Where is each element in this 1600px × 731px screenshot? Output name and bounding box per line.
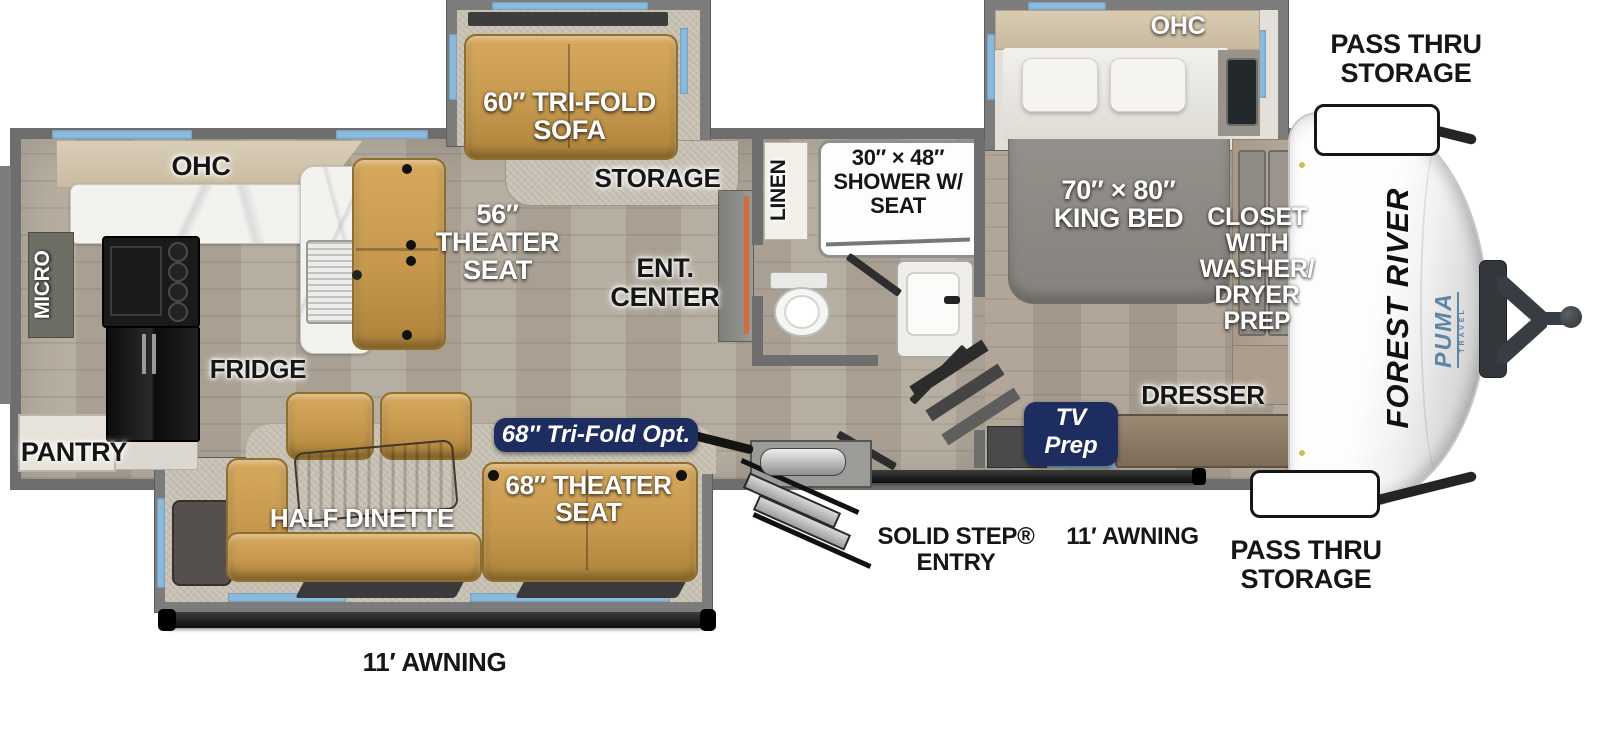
storage-label: STORAGE	[585, 164, 730, 192]
window-strip	[336, 130, 428, 139]
window-strip	[1028, 2, 1106, 10]
label-line: CENTER	[600, 283, 730, 312]
window-strip	[492, 2, 648, 10]
cupholder	[402, 330, 412, 340]
sofa-back-ledge	[468, 12, 668, 26]
tri-fold-option-badge: 68″ Tri-Fold Opt.	[494, 418, 698, 452]
tv-prep-badge: TV Prep	[1024, 402, 1118, 466]
brand-model-logo: PUMA TRAVEL	[1430, 292, 1466, 368]
bath-wall	[752, 355, 878, 366]
label-line: THEATER	[430, 228, 565, 256]
shower-label: 30″ × 48″ SHOWER W/ SEAT	[822, 146, 974, 217]
entry-step-roller	[760, 448, 846, 476]
fridge-handle	[152, 334, 156, 374]
seat-divider	[356, 248, 438, 251]
awning-camp-side-label: 11′ AWNING	[352, 648, 517, 676]
awning-bar-camp-side	[166, 612, 706, 628]
label-line: KING BED	[1026, 204, 1211, 232]
micro-label: MICRO	[32, 238, 68, 332]
tri-fold-sofa-label: 60″ TRI-FOLD SOFA	[462, 88, 677, 144]
badge-line: Prep	[1024, 432, 1118, 460]
window-strip	[449, 34, 457, 100]
label-line: SEAT	[822, 194, 974, 218]
bath-wall	[752, 139, 763, 245]
bedroom-ohc-label: OHC	[1118, 13, 1238, 39]
label-line: SOFA	[462, 116, 677, 144]
closet-label: CLOSET WITH WASHER/ DRYER PREP	[1192, 204, 1322, 334]
label-line: DRYER	[1192, 282, 1322, 308]
oven-door	[110, 246, 162, 316]
dinette-end-window	[172, 500, 232, 586]
bedroom-corner-window	[1226, 58, 1258, 126]
label-line: PASS THRU	[1222, 536, 1390, 565]
bedroom-wall	[974, 139, 985, 297]
kitchen-ohc-label: OHC	[146, 152, 256, 181]
label-line: CLOSET	[1192, 204, 1322, 230]
window-strip	[680, 28, 688, 94]
burner	[168, 262, 188, 282]
awning-end-cap	[1192, 468, 1206, 485]
label-line: SEAT	[430, 256, 565, 284]
label-line: 30″ × 48″	[822, 146, 974, 170]
label-line: STORAGE	[1222, 565, 1390, 594]
badge-line: TV	[1024, 404, 1118, 432]
pillow	[1110, 58, 1186, 112]
window-strip	[157, 498, 165, 588]
fridge-label: FRIDGE	[198, 355, 318, 383]
label-line: PREP	[1192, 308, 1322, 334]
pillow	[1022, 58, 1098, 112]
awning-end-cap	[158, 609, 176, 631]
pass-thru-front-label: PASS THRU STORAGE	[1322, 30, 1490, 88]
window-strip	[52, 130, 192, 139]
label-line: 60″ TRI-FOLD	[462, 88, 677, 116]
label-line: WASHER/	[1192, 256, 1322, 282]
kitchen-faucet	[352, 270, 362, 280]
burner	[168, 302, 188, 322]
awning-end-cap	[700, 609, 716, 631]
pass-thru-door-side-label: PASS THRU STORAGE	[1222, 536, 1390, 594]
label-line: 56″	[430, 200, 565, 228]
pass-thru-hatch-front	[1314, 104, 1440, 156]
fireplace-accent	[744, 196, 749, 334]
label-line: 70″ × 80″	[1026, 176, 1211, 204]
half-dinette-label: HALF DINETTE	[256, 505, 468, 532]
clearance-light	[1299, 450, 1305, 456]
cupholder	[402, 164, 412, 174]
awning-door-side-label: 11′ AWNING	[1050, 524, 1215, 550]
cupholder	[406, 240, 416, 250]
ent-center-label: ENT. CENTER	[600, 254, 730, 312]
floorplan-canvas: 60″ TRI-FOLD SOFA STORAGE OHC OHC MICRO …	[0, 0, 1600, 731]
dresser	[1115, 414, 1299, 468]
label-line: SOLID STEP®	[872, 524, 1040, 550]
label-line: ENTRY	[872, 550, 1040, 576]
label-line: SEAT	[496, 499, 681, 526]
hitch-ball	[1560, 306, 1582, 328]
label-line: STORAGE	[1322, 59, 1490, 88]
label-line: ENT.	[600, 254, 730, 283]
king-bed-label: 70″ × 80″ KING BED	[1026, 176, 1211, 232]
burner	[168, 242, 188, 262]
theater-seat-68-label: 68″ THEATER SEAT	[496, 472, 681, 526]
brand-manufacturer: FOREST RIVER	[1380, 187, 1416, 428]
vanity-faucet	[944, 296, 960, 304]
brand-model-sub: TRAVEL	[1459, 292, 1466, 368]
left-exterior-trim	[0, 166, 11, 404]
pass-thru-hatch-door-side	[1250, 470, 1380, 518]
pantry-label: PANTRY	[12, 438, 136, 467]
label-line: SHOWER W/	[822, 170, 974, 194]
window-strip	[987, 34, 995, 100]
bedroom-wall	[974, 430, 985, 468]
linen-label: LINEN	[768, 146, 802, 234]
vanity-basin	[906, 272, 960, 336]
slide-mat	[295, 580, 465, 598]
label-line: PASS THRU	[1322, 30, 1490, 59]
theater-seat-56-label: 56″ THEATER SEAT	[430, 200, 565, 284]
dresser-label: DRESSER	[1128, 381, 1278, 409]
slide-mat	[515, 580, 687, 598]
clearance-light	[1299, 162, 1305, 168]
cupholder	[406, 256, 416, 266]
solid-step-label: SOLID STEP® ENTRY	[872, 524, 1040, 576]
brand-model: PUMA	[1430, 292, 1459, 368]
dinette-bench	[226, 532, 482, 582]
toilet-seat-ring	[784, 295, 820, 329]
fridge-handle	[142, 334, 146, 374]
label-line: WITH	[1192, 230, 1322, 256]
label-line: 68″ THEATER	[496, 472, 681, 499]
burner	[168, 282, 188, 302]
awning-bar-door-side	[866, 470, 1198, 483]
